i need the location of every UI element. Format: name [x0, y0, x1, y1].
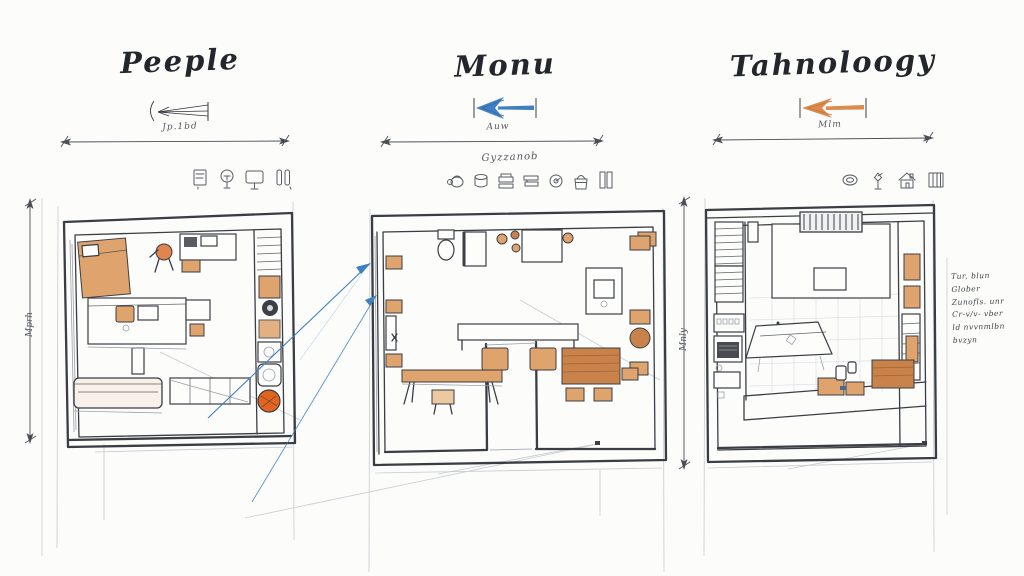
- sketch-canvas: Peeple Jp.1bd: [0, 0, 1024, 576]
- note-line: bvzyn: [953, 333, 1023, 348]
- panel3-icon-row: [840, 168, 946, 192]
- panel3-floor-plan: [700, 196, 940, 466]
- grid-icon: [926, 168, 946, 192]
- house-icon: [896, 168, 918, 192]
- panel3-title: Tahnoloogy: [729, 43, 930, 84]
- plant-icon: [868, 168, 888, 192]
- panel3-notes: Tur, blun Glober Zunofls. unr Cr-v/v- vb…: [951, 269, 1023, 347]
- note-line: Tur, blun Glober: [951, 269, 1022, 296]
- panel3-dimension-line: [710, 131, 936, 147]
- plate-icon: [840, 168, 860, 192]
